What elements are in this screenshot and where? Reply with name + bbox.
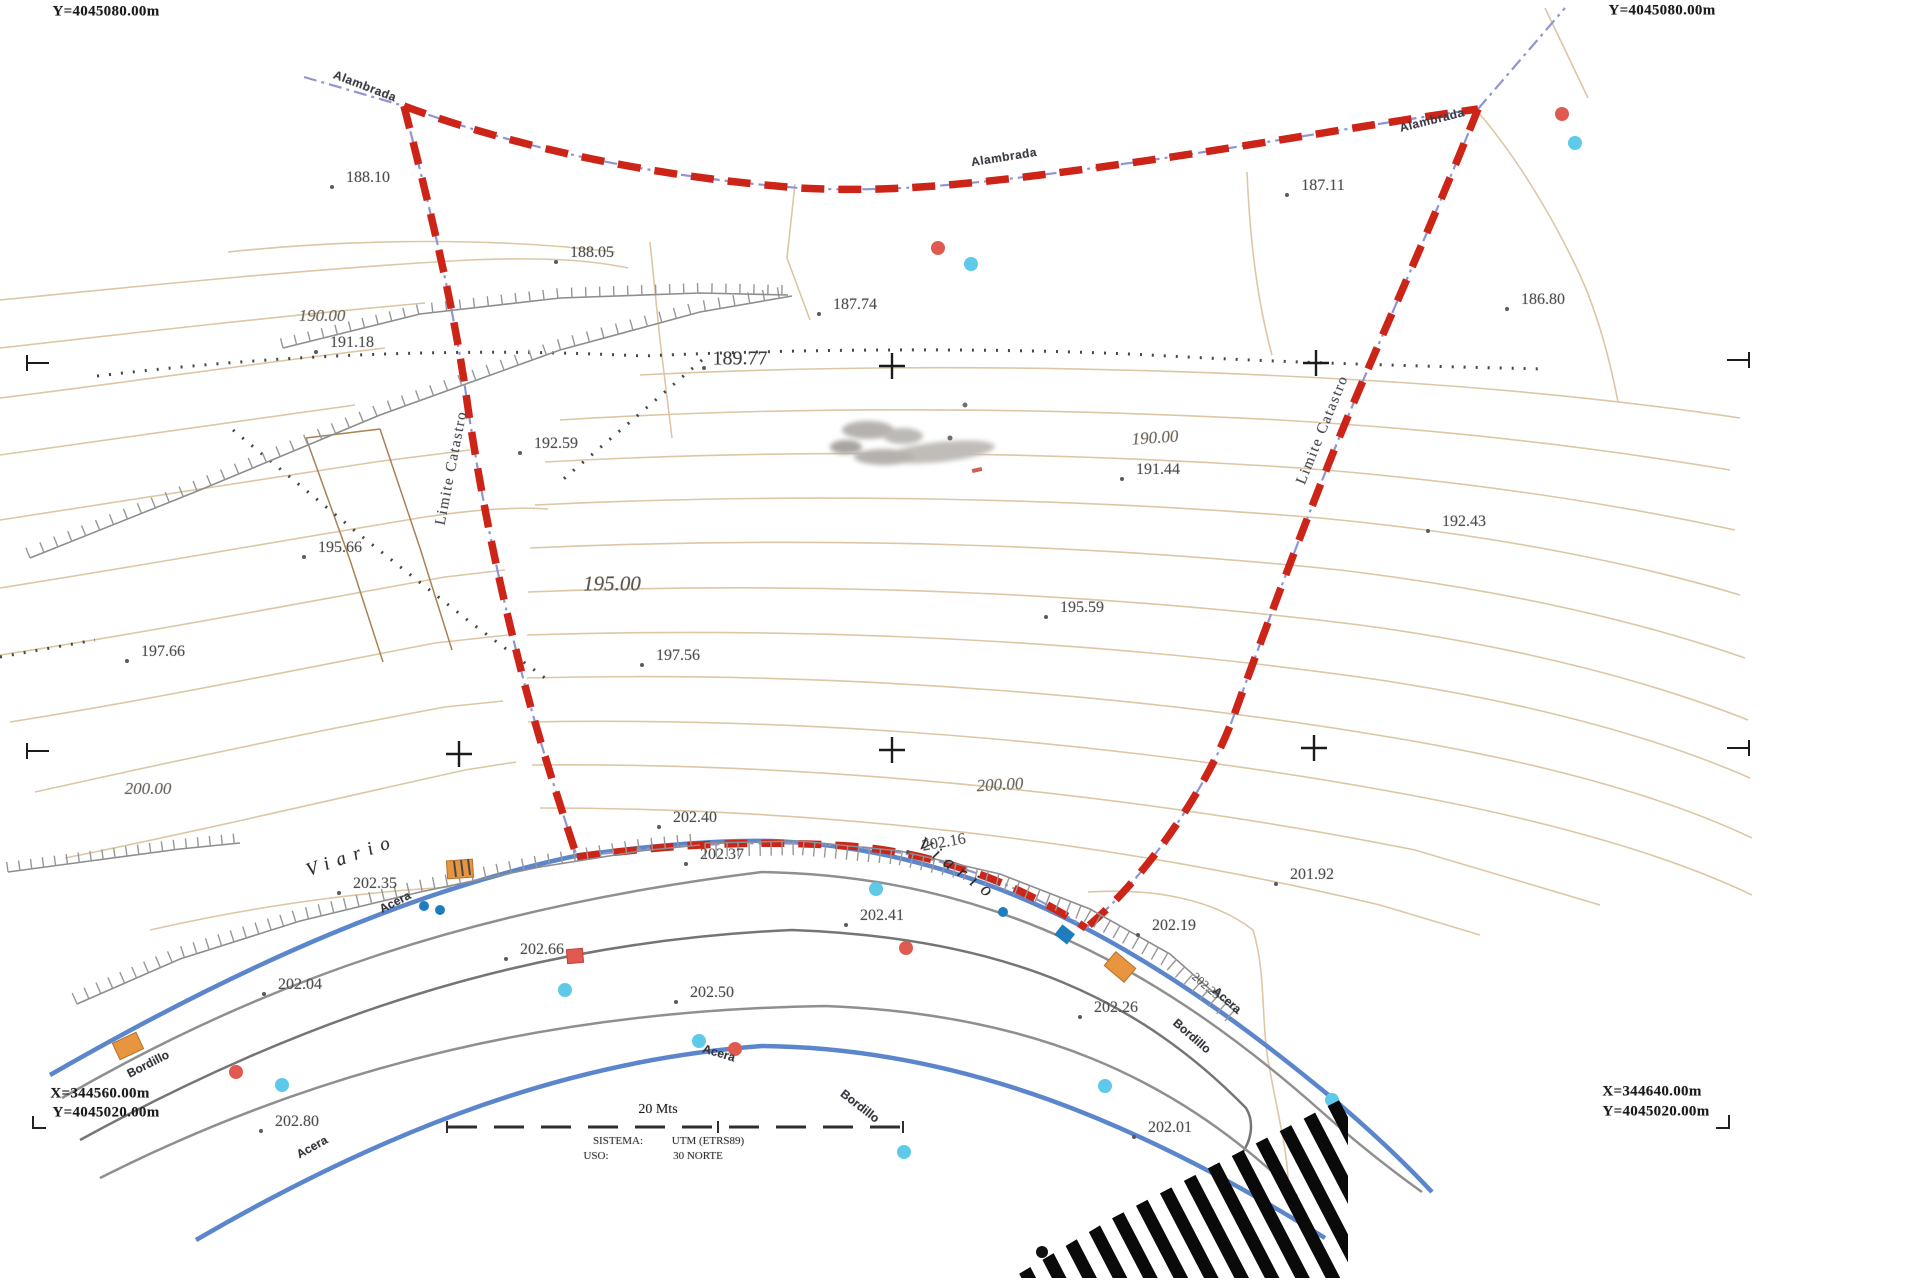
station-dot (1078, 1015, 1082, 1019)
station-dot (504, 957, 508, 961)
road-curb-upper (62, 872, 1422, 1192)
fence-lines (304, 8, 1565, 928)
smudge-area (830, 421, 996, 468)
station-dot (684, 862, 688, 866)
orange-square-marker (1104, 952, 1135, 983)
parcel-lines (306, 429, 452, 662)
road-centerline (80, 930, 1251, 1152)
cyan-dot-marker (558, 983, 572, 997)
station-dot (262, 992, 266, 996)
cyan-dot-marker (275, 1078, 289, 1092)
road-sidewalk-lower (196, 1046, 1325, 1240)
red-dot-marker (229, 1065, 243, 1079)
station-dot (330, 185, 334, 189)
red-dot-marker (931, 241, 945, 255)
dotted-boundary-lines (0, 350, 1546, 678)
cyan-dot-marker (692, 1034, 706, 1048)
station-dot (314, 350, 318, 354)
scalebar (447, 1121, 903, 1133)
blue-dot-marker (419, 901, 429, 911)
cyan-dot-marker (964, 257, 978, 271)
station-dot (1426, 529, 1430, 533)
red-dot-marker (899, 941, 913, 955)
station-dot (1044, 615, 1048, 619)
station-dot (518, 451, 522, 455)
station-dot (302, 555, 306, 559)
cyan-dot-marker (1098, 1079, 1112, 1093)
cyan-dot-marker (897, 1145, 911, 1159)
station-dot (1132, 1135, 1136, 1139)
station-dot (1136, 933, 1140, 937)
station-dot (1505, 307, 1509, 311)
red-dot-marker (1555, 107, 1569, 121)
station-dot (554, 260, 558, 264)
station-dot (337, 891, 341, 895)
survey-point-markers (112, 107, 1582, 1159)
station-dot (657, 825, 661, 829)
station-dot (702, 366, 706, 370)
station-dot (844, 923, 848, 927)
blue-dot-marker (998, 907, 1008, 917)
station-dot (1285, 193, 1289, 197)
station-dot (1120, 477, 1124, 481)
station-dot (674, 1000, 678, 1004)
red-dot-marker (728, 1042, 742, 1056)
station-dot (1274, 882, 1278, 886)
grid-marks (27, 350, 1749, 767)
road-sidewalk-upper (50, 841, 1432, 1192)
station-dot (906, 850, 910, 854)
cyan-dot-marker (1568, 136, 1582, 150)
barcode-dot (1036, 1246, 1048, 1258)
barcode-stripes (1022, 1103, 1453, 1280)
topographic-drawing (0, 0, 1920, 1280)
station-dot (125, 659, 129, 663)
station-dot (817, 312, 821, 316)
red-square-marker (566, 948, 583, 963)
blue-dot-marker (435, 905, 445, 915)
cyan-dot-marker (869, 882, 883, 896)
station-dot (259, 1129, 263, 1133)
map-canvas: Y=4045080.00mY=4045080.00mX=344560.00mY=… (0, 0, 1920, 1280)
small-red-mark (972, 467, 983, 473)
station-dot (640, 663, 644, 667)
